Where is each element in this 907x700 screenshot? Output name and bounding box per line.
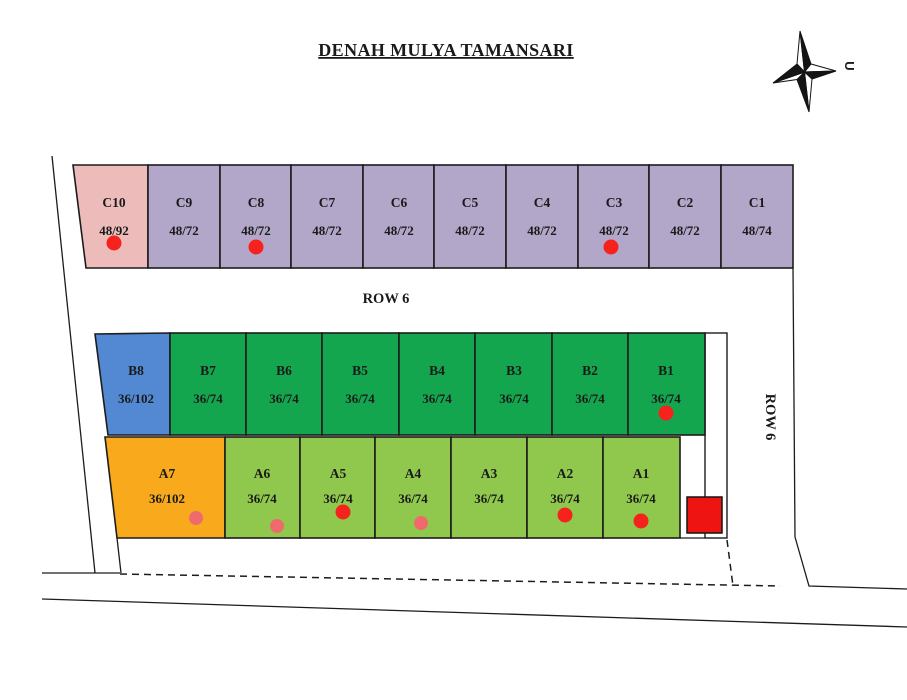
plot-c7-id: C7 bbox=[319, 195, 336, 210]
plot-a2 bbox=[527, 437, 603, 538]
sold-dot-a1 bbox=[634, 514, 649, 529]
plot-c8-id: C8 bbox=[248, 195, 265, 210]
plot-b8-size: 36/102 bbox=[118, 391, 154, 406]
row6-label-vertical: ROW 6 bbox=[762, 394, 778, 441]
sold-dot-a7 bbox=[189, 511, 203, 525]
plot-c1-size: 48/74 bbox=[742, 223, 772, 238]
plot-a6-size: 36/74 bbox=[247, 491, 277, 506]
compass-rose-icon: U bbox=[773, 31, 857, 112]
plot-b7 bbox=[170, 333, 246, 435]
plot-a5-size: 36/74 bbox=[323, 491, 353, 506]
plot-a7 bbox=[105, 437, 225, 538]
plot-a7-size: 36/102 bbox=[149, 491, 185, 506]
red-marker-square bbox=[687, 497, 722, 533]
plot-b4-id: B4 bbox=[429, 363, 445, 378]
right-boundary-line bbox=[793, 268, 795, 537]
plot-a2-id: A2 bbox=[557, 466, 574, 481]
plot-b8-id: B8 bbox=[128, 363, 144, 378]
plot-b3-id: B3 bbox=[506, 363, 522, 378]
plot-a5 bbox=[300, 437, 375, 538]
plot-c5-id: C5 bbox=[462, 195, 479, 210]
plot-b5 bbox=[322, 333, 399, 435]
sold-dot-a5 bbox=[336, 505, 351, 520]
page-title: DENAH MULYA TAMANSARI bbox=[318, 40, 573, 60]
sold-dot-c3 bbox=[604, 240, 619, 255]
row6-label-horizontal: ROW 6 bbox=[363, 291, 410, 307]
plot-c10-id: C10 bbox=[102, 195, 125, 210]
plot-c2-size: 48/72 bbox=[670, 223, 700, 238]
plot-b3 bbox=[475, 333, 552, 435]
plot-c6 bbox=[363, 165, 434, 268]
plot-b3-size: 36/74 bbox=[499, 391, 529, 406]
plot-a3-size: 36/74 bbox=[474, 491, 504, 506]
site-plan-drawing: DENAH MULYA TAMANSARI U bbox=[0, 0, 907, 700]
plot-c10 bbox=[73, 165, 148, 268]
plot-c6-size: 48/72 bbox=[384, 223, 414, 238]
plot-b6-size: 36/74 bbox=[269, 391, 299, 406]
plot-b6-id: B6 bbox=[276, 363, 292, 378]
plot-b7-id: B7 bbox=[200, 363, 216, 378]
road-lower-line bbox=[42, 599, 907, 627]
plot-c5-size: 48/72 bbox=[455, 223, 485, 238]
corner-dashed-line bbox=[727, 540, 733, 586]
plot-a7-id: A7 bbox=[159, 466, 176, 481]
compass-north-letter: U bbox=[842, 61, 857, 70]
plot-a4-size: 36/74 bbox=[398, 491, 428, 506]
left-strip-line bbox=[117, 538, 121, 573]
plot-c9-size: 48/72 bbox=[169, 223, 199, 238]
sold-dot-c8 bbox=[249, 240, 264, 255]
sold-dot-a2 bbox=[558, 508, 573, 523]
plot-a3-id: A3 bbox=[481, 466, 498, 481]
plot-a1-size: 36/74 bbox=[626, 491, 656, 506]
right-corner-line bbox=[795, 537, 907, 589]
plot-c2 bbox=[649, 165, 721, 268]
plot-b4 bbox=[399, 333, 475, 435]
plot-c4-id: C4 bbox=[534, 195, 551, 210]
plot-a3 bbox=[451, 437, 527, 538]
plot-c7-size: 48/72 bbox=[312, 223, 342, 238]
b-row-plots: B8 36/102 B7 36/74 B6 36/74 B5 36/74 B4 … bbox=[95, 333, 705, 435]
plot-c1-id: C1 bbox=[749, 195, 766, 210]
plot-a1-id: A1 bbox=[633, 466, 650, 481]
plot-c5 bbox=[434, 165, 506, 268]
plot-b1-id: B1 bbox=[658, 363, 674, 378]
sold-dot-a4 bbox=[414, 516, 428, 530]
plot-b1-size: 36/74 bbox=[651, 391, 681, 406]
plot-c3-size: 48/72 bbox=[599, 223, 629, 238]
plot-c6-id: C6 bbox=[391, 195, 408, 210]
plot-b2 bbox=[552, 333, 628, 435]
plot-c4 bbox=[506, 165, 578, 268]
plot-b8 bbox=[95, 333, 170, 435]
plot-a6-id: A6 bbox=[254, 466, 271, 481]
plot-c1 bbox=[721, 165, 793, 268]
plot-a4-id: A4 bbox=[405, 466, 422, 481]
plot-c9-id: C9 bbox=[176, 195, 193, 210]
road-edge-dashed bbox=[120, 574, 780, 586]
plot-a6 bbox=[225, 437, 300, 538]
plot-c9 bbox=[148, 165, 220, 268]
sold-dot-b1 bbox=[659, 406, 674, 421]
plot-a2-size: 36/74 bbox=[550, 491, 580, 506]
plot-b6 bbox=[246, 333, 322, 435]
plot-b2-id: B2 bbox=[582, 363, 598, 378]
plot-c8-size: 48/72 bbox=[241, 223, 271, 238]
plot-b4-size: 36/74 bbox=[422, 391, 452, 406]
plot-b5-size: 36/74 bbox=[345, 391, 375, 406]
site-plan-page: DENAH MULYA TAMANSARI U bbox=[0, 0, 907, 700]
plot-a4 bbox=[375, 437, 451, 538]
plot-c2-id: C2 bbox=[677, 195, 694, 210]
plot-c4-size: 48/72 bbox=[527, 223, 557, 238]
sold-dot-a6 bbox=[270, 519, 284, 533]
plot-b7-size: 36/74 bbox=[193, 391, 223, 406]
plot-a5-id: A5 bbox=[330, 466, 347, 481]
c-row-plots: C10 48/92 C9 48/72 C8 48/72 C7 48/72 C6 … bbox=[73, 165, 793, 268]
plot-b2-size: 36/74 bbox=[575, 391, 605, 406]
sold-dot-c10 bbox=[107, 236, 122, 251]
plot-b5-id: B5 bbox=[352, 363, 368, 378]
plot-c7 bbox=[291, 165, 363, 268]
plot-c3-id: C3 bbox=[606, 195, 623, 210]
